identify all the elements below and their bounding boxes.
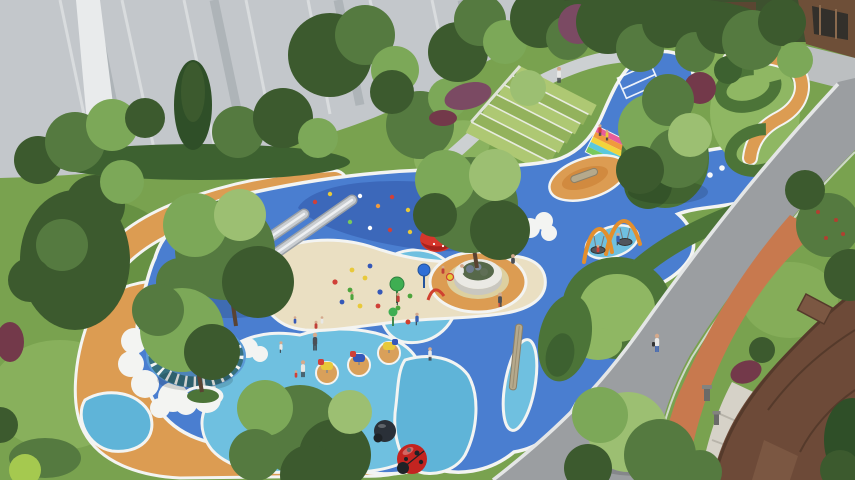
shoulder-bag — [652, 342, 655, 347]
person-seated — [511, 254, 515, 264]
person-seated — [460, 264, 464, 274]
stone-lantern — [704, 388, 710, 401]
scene-canvas: Aerial 3D rendering of a residential chi… — [0, 0, 855, 480]
bottom-center-trees — [229, 380, 372, 480]
beach-ball — [447, 274, 454, 281]
person — [442, 266, 445, 274]
person — [315, 321, 318, 329]
swing-basket — [618, 239, 632, 246]
person — [294, 316, 297, 323]
playground-aerial-rendering: Aerial 3D rendering of a residential chi… — [0, 0, 855, 480]
stone-lantern — [714, 414, 719, 425]
ladybug-sculpture-red — [397, 444, 427, 474]
person — [321, 316, 324, 323]
person — [295, 370, 298, 377]
person — [350, 291, 353, 300]
person-on-swing — [597, 245, 600, 252]
